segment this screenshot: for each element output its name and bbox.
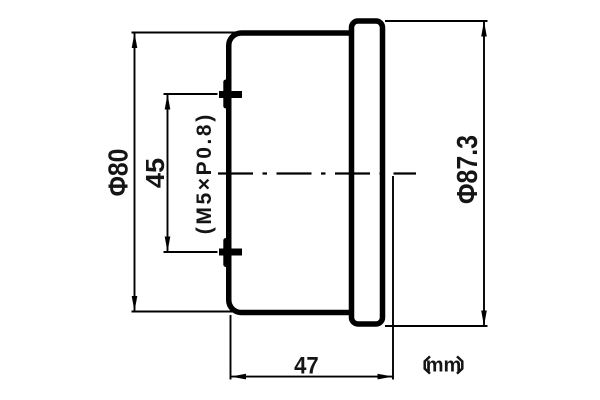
svg-text:45: 45 <box>140 158 170 188</box>
svg-text:Φ87.3: Φ87.3 <box>452 135 484 204</box>
svg-text:mm: mm <box>426 354 462 376</box>
svg-text:47: 47 <box>294 352 319 379</box>
svg-text:(M5×P0.8): (M5×P0.8) <box>193 112 216 234</box>
svg-text:Φ80: Φ80 <box>102 149 133 197</box>
